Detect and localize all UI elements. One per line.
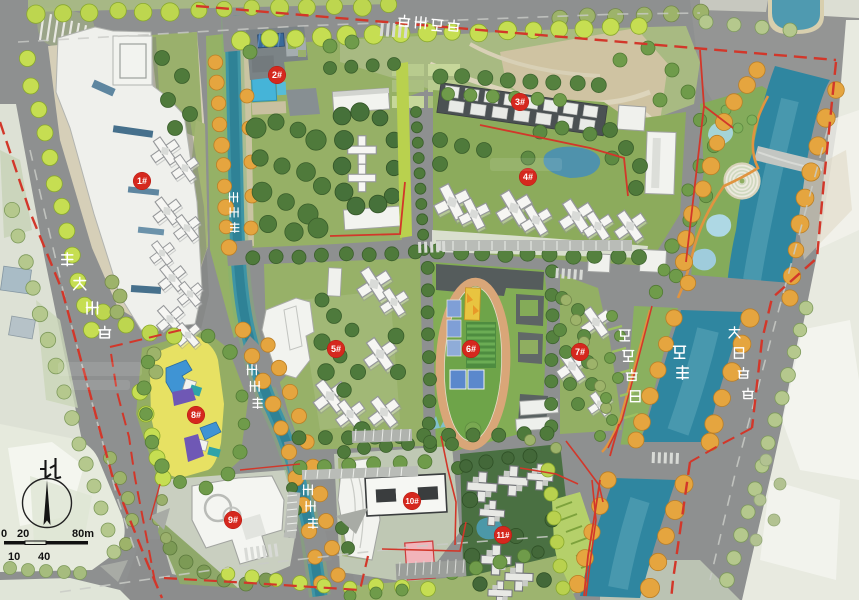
- svg-text:40: 40: [38, 551, 50, 563]
- svg-text:4#: 4#: [523, 172, 533, 182]
- svg-text:7#: 7#: [575, 347, 585, 357]
- svg-text:11#: 11#: [497, 531, 510, 540]
- svg-text:8#: 8#: [191, 410, 201, 420]
- svg-text:6#: 6#: [466, 344, 476, 354]
- svg-text:2#: 2#: [272, 70, 282, 80]
- svg-text:5#: 5#: [331, 344, 341, 354]
- svg-text:80m: 80m: [72, 528, 94, 540]
- svg-text:10: 10: [8, 551, 20, 563]
- svg-text:0: 0: [1, 528, 7, 540]
- svg-text:20: 20: [17, 528, 29, 540]
- svg-text:1#: 1#: [137, 176, 147, 186]
- svg-text:3#: 3#: [515, 97, 525, 107]
- svg-text:10#: 10#: [405, 497, 419, 506]
- svg-text:9#: 9#: [228, 515, 238, 525]
